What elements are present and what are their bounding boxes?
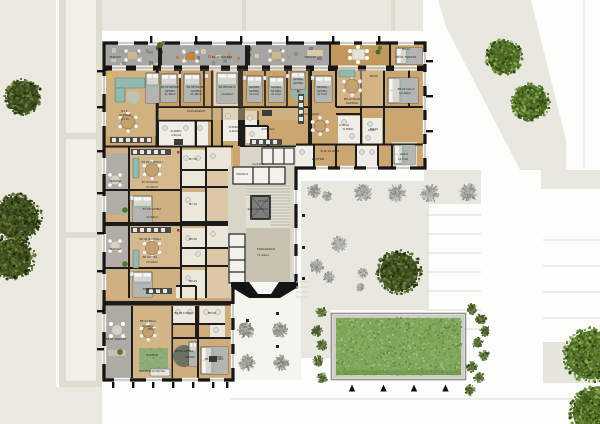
svg-text:17.2m2: 17.2m2 [258, 199, 268, 203]
svg-text:71.24m2: 71.24m2 [257, 253, 269, 257]
svg-text:TERASZ: TERASZ [304, 55, 316, 59]
svg-text:B7 52.00m2: B7 52.00m2 [142, 180, 159, 184]
svg-text:B5 64.58m2: B5 64.58m2 [140, 319, 157, 323]
svg-text:14.04m2: 14.04m2 [221, 92, 233, 96]
svg-text:NAPPALI: NAPPALI [146, 353, 159, 357]
svg-text:B6.02 NAPPALI: B6.02 NAPPALI [139, 237, 160, 241]
svg-text:B5.06: B5.06 [208, 311, 216, 315]
svg-text:B1.12 TERASZ: B1.12 TERASZ [212, 55, 233, 59]
svg-text:B1.08 HALO: B1.08 HALO [219, 85, 237, 89]
svg-text:SZOBA: SZOBA [317, 89, 327, 93]
svg-text:B1.11: B1.11 [121, 117, 129, 121]
svg-text:B9.01: B9.01 [402, 47, 410, 51]
svg-text:B9.05: B9.05 [370, 74, 378, 78]
svg-text:SZOBA: SZOBA [165, 89, 175, 93]
svg-text:B7.04: B7.04 [189, 202, 197, 206]
svg-text:14.29m2: 14.29m2 [399, 91, 411, 95]
svg-text:B7.03 SZOBA: B7.03 SZOBA [143, 207, 162, 211]
svg-text:64.58m2: 64.58m2 [142, 324, 154, 328]
svg-text:4.40m2: 4.40m2 [339, 123, 349, 127]
svg-text:KOZLEKEDO: KOZLEKEDO [301, 112, 320, 116]
svg-text:B6.04: B6.04 [189, 279, 197, 283]
svg-text:12.5m2: 12.5m2 [398, 157, 408, 161]
svg-text:SZOBA: SZOBA [271, 89, 281, 93]
svg-text:NAPPALI-KONYHA: NAPPALI-KONYHA [139, 369, 165, 373]
svg-text:B6.05: B6.05 [189, 237, 197, 241]
svg-text:TERASZ: TERASZ [109, 247, 121, 251]
svg-text:12.94m2: 12.94m2 [146, 215, 158, 219]
svg-text:KOZLEKEDO: KOZLEKEDO [187, 109, 206, 113]
svg-text:27.09m2: 27.09m2 [146, 185, 158, 189]
svg-text:B5.08 SZOBA: B5.08 SZOBA [205, 357, 224, 361]
svg-text:FURDO: FURDO [343, 127, 354, 131]
svg-text:4.36m2: 4.36m2 [171, 133, 181, 137]
svg-text:B5.05 FURDO: B5.05 FURDO [174, 311, 194, 315]
svg-text:SZOBA: SZOBA [293, 81, 303, 85]
svg-text:B6 SZOBA: B6 SZOBA [143, 255, 158, 259]
svg-text:TAROLO: TAROLO [236, 172, 249, 176]
svg-text:B5.09 SZOBA: B5.09 SZOBA [175, 349, 194, 353]
svg-text:KOZLEKEDO: KOZLEKEDO [257, 247, 276, 251]
svg-text:B9.01 TERASZ: B9.01 TERASZ [396, 55, 417, 59]
svg-text:B6.03 SZOBA: B6.03 SZOBA [143, 287, 162, 291]
svg-text:B.10 26.40m2: B.10 26.40m2 [321, 149, 340, 153]
svg-text:TERASZ: TERASZ [109, 179, 121, 183]
svg-text:TERASZ: TERASZ [109, 55, 121, 59]
svg-text:4.40m2: 4.40m2 [229, 129, 239, 133]
svg-text:SZOBA: SZOBA [185, 355, 195, 359]
svg-text:NAPPALI: NAPPALI [346, 101, 359, 105]
svg-text:ELOTER: ELOTER [312, 157, 325, 161]
svg-text:SZOBA: SZOBA [249, 89, 259, 93]
svg-text:KOZL: KOZL [368, 128, 376, 132]
svg-text:B7.01 NAPPALI: B7.01 NAPPALI [141, 160, 162, 164]
svg-text:KONYHA: KONYHA [262, 127, 275, 131]
svg-text:B7.05: B7.05 [189, 157, 197, 161]
svg-text:SZOBA: SZOBA [191, 89, 201, 93]
svg-text:HALO: HALO [400, 152, 409, 156]
svg-text:14.04m2: 14.04m2 [252, 162, 264, 166]
svg-text:B5.01 TERASZ: B5.01 TERASZ [106, 337, 127, 341]
svg-text:27.09m2: 27.09m2 [146, 260, 158, 264]
svg-text:ELOCSARNOK: ELOCSARNOK [248, 207, 269, 211]
